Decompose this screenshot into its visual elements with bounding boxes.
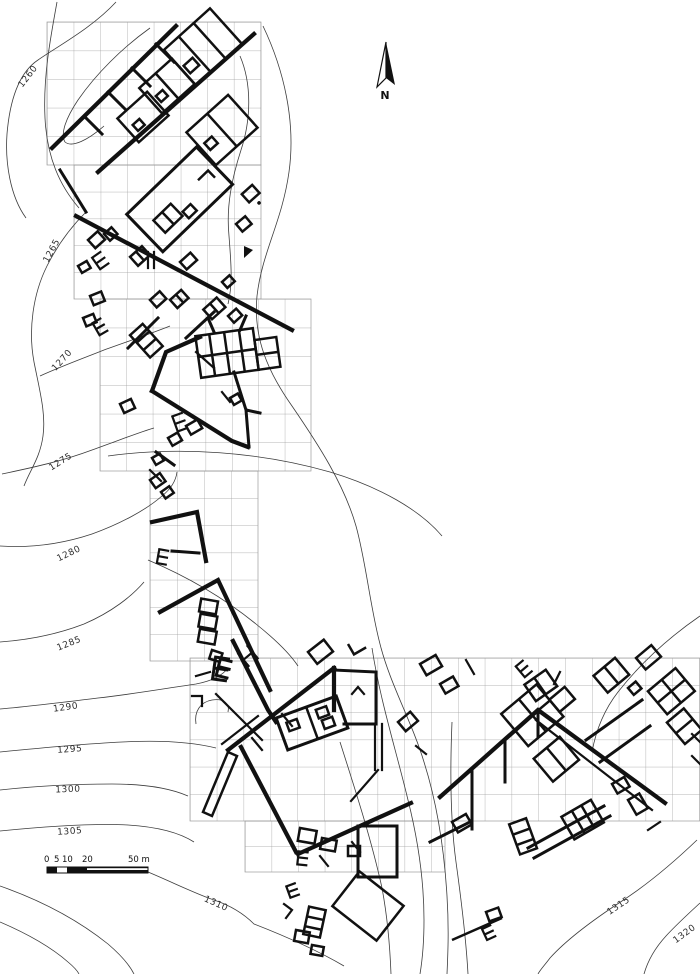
scale-tick-5: 5: [54, 855, 59, 865]
scale-tick-10: 10: [62, 855, 73, 865]
contour-label-1295: 1295: [57, 744, 83, 756]
contour-label-1305: 1305: [57, 826, 83, 838]
contour-label-1260: 1260: [17, 64, 40, 90]
north-arrow-icon: N: [377, 42, 395, 102]
contour-label-1290: 1290: [52, 701, 78, 714]
contour-label-1275: 1275: [48, 451, 75, 473]
contour-label-1315: 1315: [606, 895, 633, 917]
scale-tick-50m: 50 m: [128, 855, 150, 865]
contour-label-1280: 1280: [56, 544, 83, 564]
contour-label-1265: 1265: [42, 238, 63, 265]
north-label: N: [380, 89, 389, 102]
scale-bar: 0 5 10 20 50 m: [44, 855, 150, 873]
contour-label-1300: 1300: [55, 785, 81, 796]
contour-label-1285: 1285: [56, 635, 83, 654]
scale-tick-0: 0: [44, 855, 49, 865]
site-plan-map: 1260 1265 1270 1275 1280 1285 1290 1295 …: [0, 0, 700, 974]
contour-label-1270: 1270: [50, 348, 74, 374]
survey-grid: [47, 22, 700, 872]
scale-tick-20: 20: [82, 855, 93, 865]
contour-label-1310: 1310: [202, 894, 229, 913]
